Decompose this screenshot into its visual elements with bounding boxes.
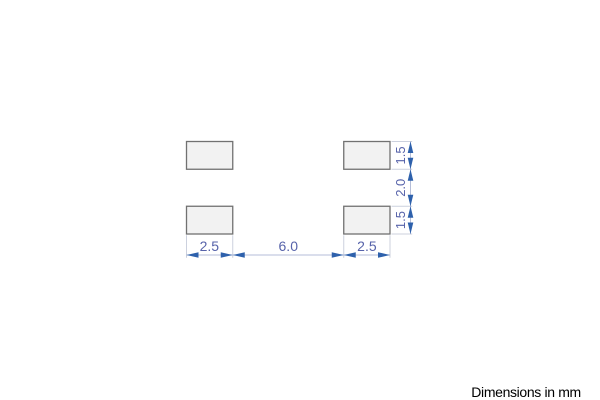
svg-text:Dimensions in mm: Dimensions in mm <box>471 384 581 400</box>
svg-text:1.5: 1.5 <box>393 146 408 164</box>
svg-text:1.5: 1.5 <box>393 211 408 229</box>
svg-text:2.5: 2.5 <box>200 238 220 254</box>
svg-text:2.0: 2.0 <box>393 179 408 197</box>
svg-text:6.0: 6.0 <box>279 238 299 254</box>
svg-text:2.5: 2.5 <box>357 238 377 254</box>
